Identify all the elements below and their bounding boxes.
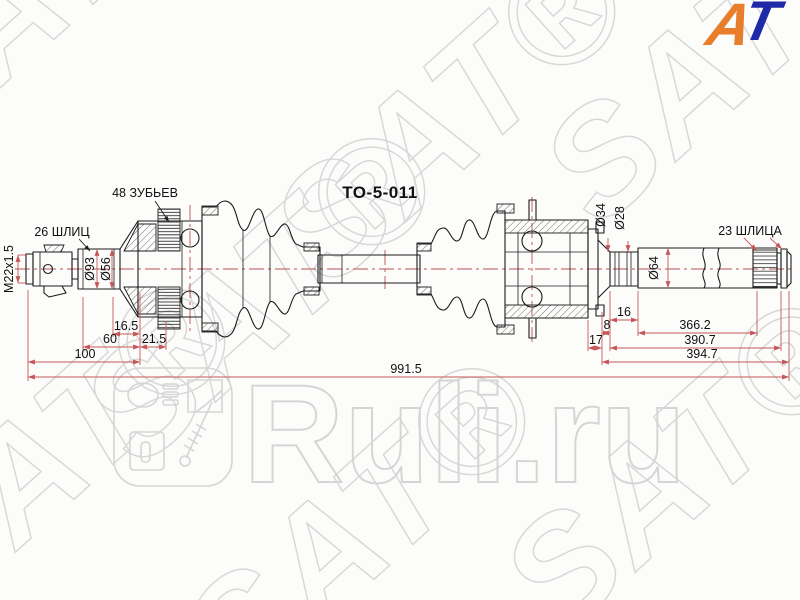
label-d56: Ø56	[99, 257, 113, 281]
ruli-watermark-text: Ruli.ru	[243, 355, 686, 512]
at-logo: T A	[698, 0, 800, 54]
dim-label-100: 100	[75, 347, 96, 361]
dim-label-366-2: 366.2	[679, 318, 710, 332]
label-d93: Ø93	[83, 257, 97, 281]
right-boot-bottom	[417, 291, 505, 327]
tripod-pin-bottom	[529, 318, 536, 338]
watermark-layer: Ruli.ru	[0, 0, 800, 600]
dim-label-16-5: 16.5	[114, 319, 138, 333]
dim-label-390-7: 390.7	[684, 333, 715, 347]
part-number-label: TO-5-011	[342, 183, 418, 202]
callout-left-spline: 26 ШЛИЦ	[34, 225, 90, 239]
flange-cone-bottom	[598, 286, 610, 298]
label-d34: Ø34	[594, 203, 608, 227]
label-d64: Ø64	[647, 256, 661, 280]
dim-label-8: 8	[604, 318, 611, 332]
boot-clamp	[497, 204, 514, 213]
housing-hatch-bottom	[505, 305, 588, 318]
flange-tip-bottom	[596, 305, 604, 316]
dim-label-991-5: 991.5	[390, 362, 421, 376]
cv-axle-technical-drawing: SAT® Ruli.ru	[0, 0, 800, 600]
right-spline-leader	[744, 238, 757, 251]
right-spline-section	[753, 250, 777, 287]
dim-label-16: 16	[617, 305, 631, 319]
dim-label-17: 17	[589, 333, 603, 347]
break-mark-right	[718, 248, 720, 288]
boot-clamp	[497, 325, 514, 334]
bell-section-hatch-top	[124, 224, 156, 251]
label-thread-size: M22x1.5	[2, 245, 16, 293]
right-spline-leader	[770, 238, 782, 249]
dim-label-60: 60	[103, 332, 117, 346]
dim-label-394-7: 394.7	[686, 347, 717, 361]
break-mark-left	[703, 248, 705, 288]
callout-right-spline: 23 ШЛИЦА	[718, 224, 782, 238]
housing-hatch-top	[505, 220, 588, 233]
axle-drawing-page: SAT® Ruli.ru	[0, 0, 800, 600]
abs-ring-bottom	[158, 287, 180, 329]
tripod-pin-top	[529, 200, 536, 220]
dim-label-21-5: 21.5	[142, 332, 166, 346]
boot-clamp	[304, 287, 319, 295]
label-d28: Ø28	[613, 206, 627, 230]
stub-bottom-lever	[44, 286, 66, 297]
abs-ring-top	[158, 209, 180, 251]
boot-clamp	[304, 243, 319, 251]
callout-abs-teeth: 48 ЗУБЬЕВ	[112, 186, 178, 200]
stub-top-clip	[44, 245, 64, 252]
